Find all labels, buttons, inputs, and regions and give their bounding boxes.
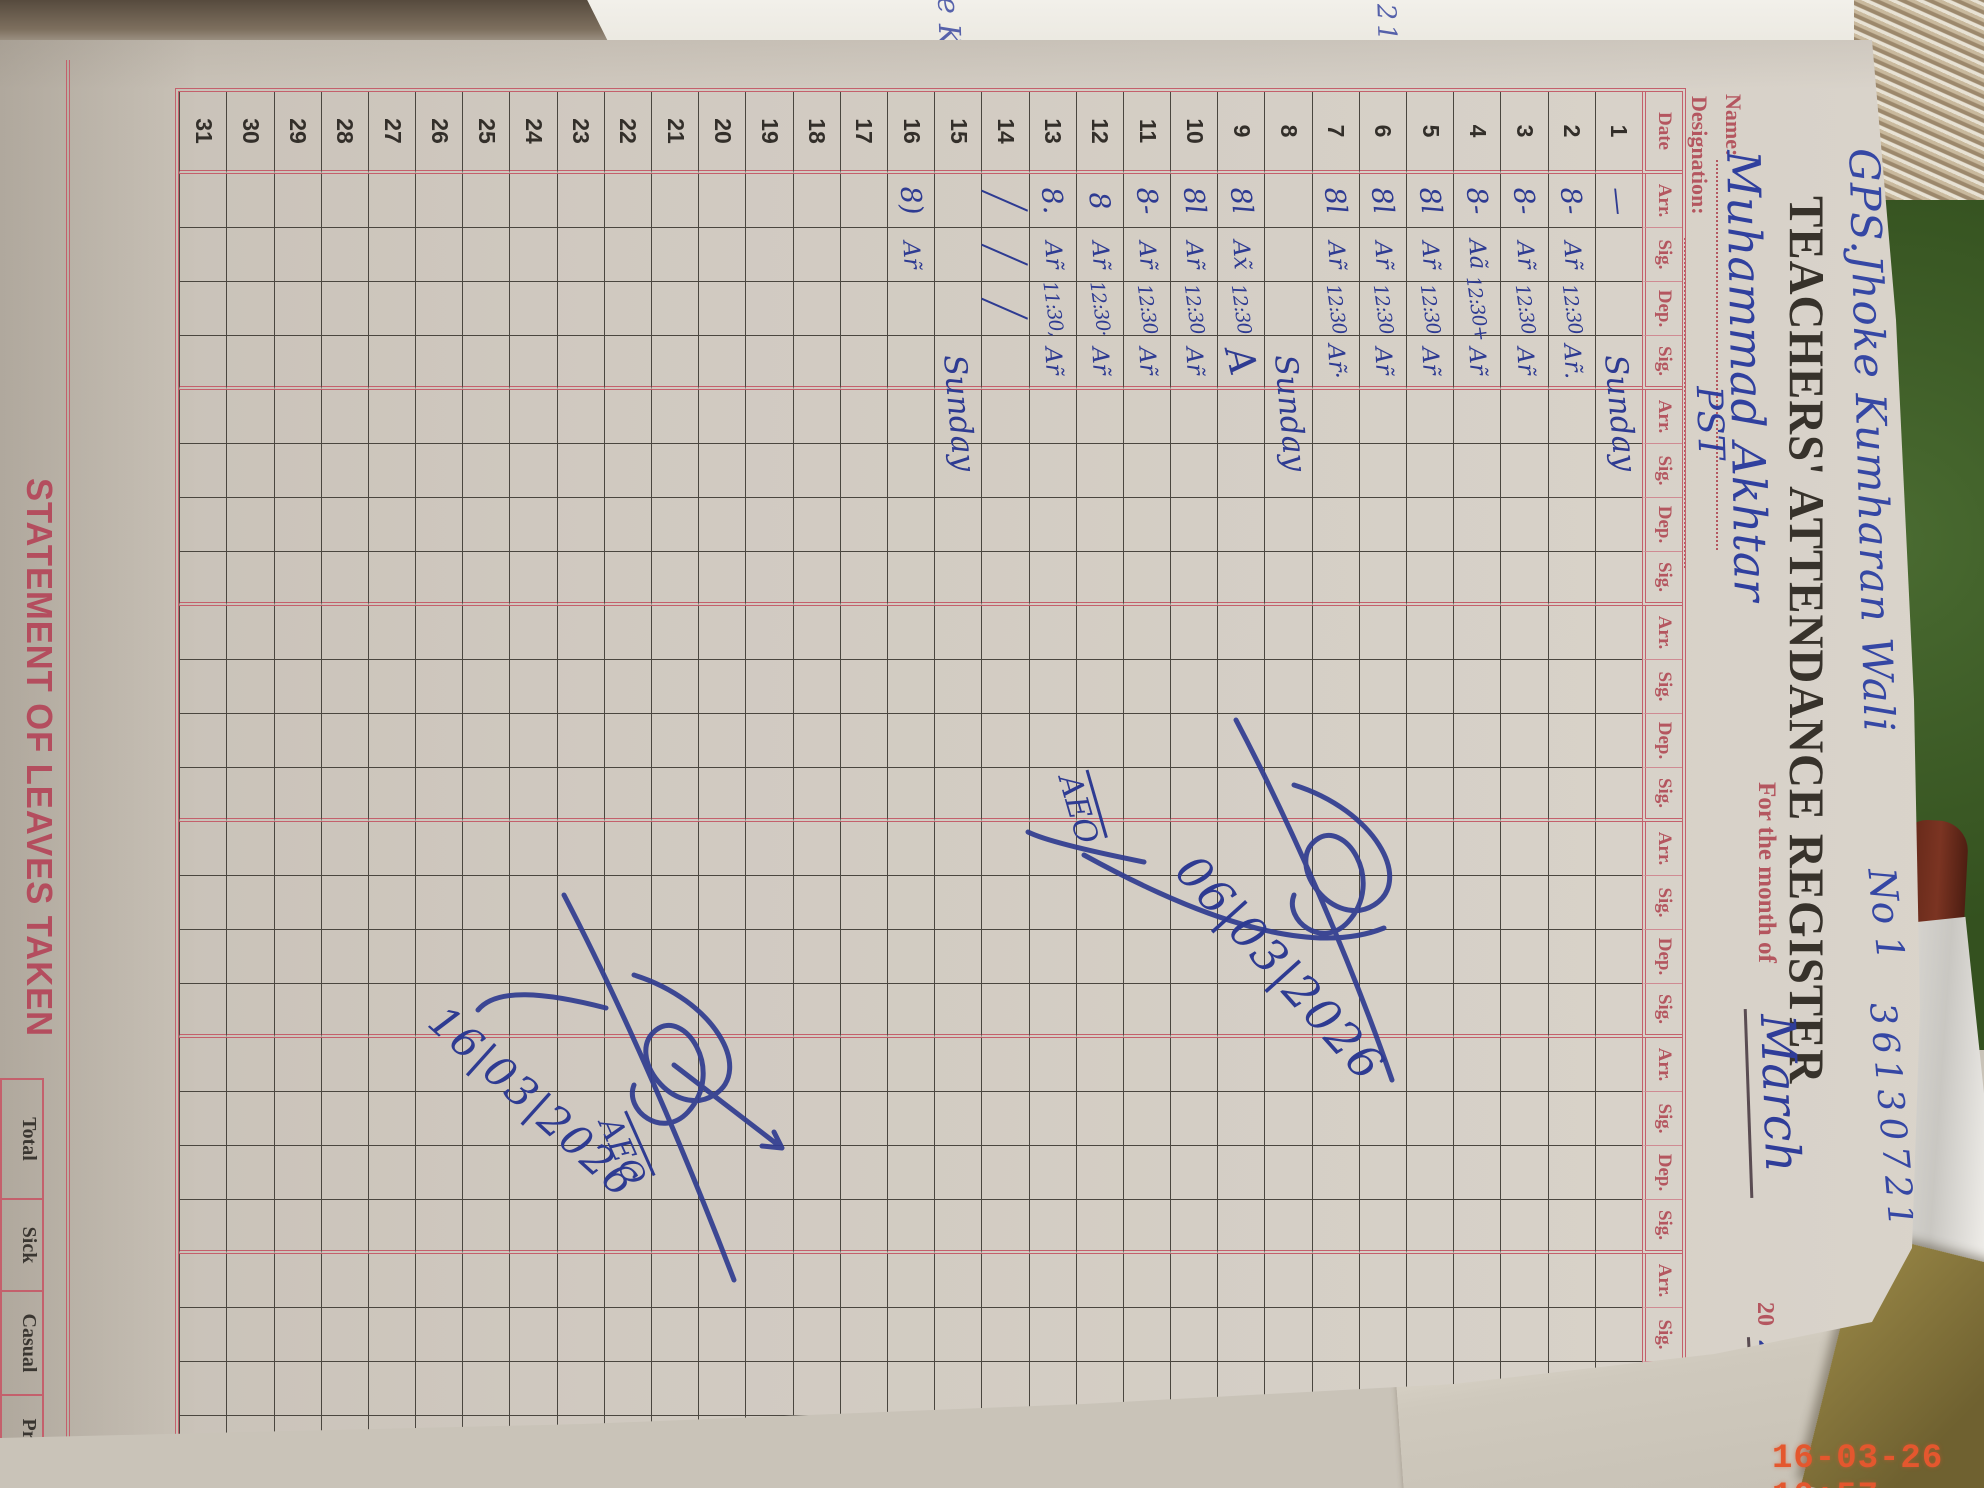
header-dep: Dep. [1642,1362,1682,1416]
empty-cell [1217,552,1264,606]
empty-cell [462,714,509,768]
empty-cell [1312,1308,1359,1362]
empty-cell [226,282,273,336]
empty-cell [226,822,273,876]
empty-cell [745,1416,792,1470]
empty-cell [1548,606,1595,660]
empty-cell [981,822,1028,876]
empty-cell [840,1254,887,1308]
empty-cell [1548,1308,1595,1362]
empty-cell [981,1200,1028,1254]
empty-cell [1359,1254,1406,1308]
empty-cell [1217,498,1264,552]
empty-cell [1406,1362,1453,1416]
entry-cell: Ar̃ [1170,228,1217,282]
statement-section-border [66,60,70,1468]
empty-cell [1359,606,1406,660]
empty-cell [934,1362,981,1416]
empty-cell [415,606,462,660]
empty-cell [368,444,415,498]
empty-cell [840,552,887,606]
date-cell: 2 [1548,92,1595,174]
empty-cell [179,1416,226,1470]
empty-cell [274,444,321,498]
entry-cell: 8l [1217,174,1264,228]
empty-cell [698,228,745,282]
empty-cell [1076,1416,1123,1470]
empty-cell [887,822,934,876]
name-label: Name: [1720,94,1746,156]
empty-cell [274,1092,321,1146]
empty-cell [1076,444,1123,498]
empty-cell [1500,876,1547,930]
empty-cell [1029,1200,1076,1254]
empty-cell [321,390,368,444]
empty-cell [226,1416,273,1470]
empty-cell [793,498,840,552]
empty-cell [1265,1416,1312,1470]
empty-cell [1595,1146,1642,1200]
empty-cell [1453,390,1500,444]
empty-cell [1265,1200,1312,1254]
empty-cell [1500,498,1547,552]
empty-cell [179,1200,226,1254]
empty-cell [1359,552,1406,606]
empty-cell [510,174,557,228]
empty-cell [745,390,792,444]
empty-cell [557,282,604,336]
statement-header-cells: TotalSickCasualPrv. [0,1078,44,1478]
empty-cell [321,768,368,822]
empty-cell [1453,1416,1500,1470]
empty-cell [415,822,462,876]
header-sig: Sig. [1642,660,1682,714]
empty-cell [226,1146,273,1200]
designation-label: Designation: [1686,96,1712,215]
empty-cell [934,1416,981,1470]
entry-cell: A [1217,336,1264,390]
empty-cell [981,1038,1028,1092]
empty-cell [887,876,934,930]
empty-cell [981,876,1028,930]
empty-cell [840,606,887,660]
entry-cell: Ar̃ [1500,228,1547,282]
header-dep: Dep. [1642,1146,1682,1200]
header-arr: Arr. [1642,174,1682,228]
empty-cell [226,930,273,984]
empty-cell [274,1254,321,1308]
empty-cell [1170,444,1217,498]
empty-cell [1217,606,1264,660]
empty-cell [226,1200,273,1254]
empty-cell [745,606,792,660]
date-cell: 17 [840,92,887,174]
empty-cell [1406,1254,1453,1308]
empty-cell [1217,444,1264,498]
empty-cell [462,282,509,336]
empty-cell [274,660,321,714]
empty-cell [321,876,368,930]
empty-cell [793,552,840,606]
empty-cell [462,660,509,714]
empty-cell [840,714,887,768]
empty-cell [462,174,509,228]
empty-cell [321,1200,368,1254]
empty-cell [179,876,226,930]
empty-cell [934,1038,981,1092]
empty-cell [1595,768,1642,822]
empty-cell [1453,876,1500,930]
empty-cell [651,714,698,768]
empty-cell [1500,1038,1547,1092]
empty-cell [274,1416,321,1470]
empty-cell [793,390,840,444]
header-arr: Arr. [1642,1254,1682,1308]
empty-cell [1548,1146,1595,1200]
empty-cell [1453,1092,1500,1146]
empty-cell [698,336,745,390]
empty-cell [1500,444,1547,498]
empty-cell [415,1416,462,1470]
empty-cell [604,228,651,282]
empty-cell [934,768,981,822]
empty-cell [274,1038,321,1092]
empty-cell [1312,606,1359,660]
empty-cell [840,660,887,714]
entry-cell: 8 [1076,174,1123,228]
empty-cell [698,498,745,552]
empty-cell [745,660,792,714]
empty-cell [321,606,368,660]
empty-cell [651,336,698,390]
empty-cell [274,1200,321,1254]
empty-cell [1595,228,1642,282]
empty-cell [604,174,651,228]
empty-cell [1312,1416,1359,1470]
empty-cell [1217,1200,1264,1254]
empty-cell [1453,822,1500,876]
empty-cell [1453,1362,1500,1416]
empty-cell [698,282,745,336]
empty-cell [934,714,981,768]
teacher-name-handwriting: Muhammad Akhtar [1716,150,1778,602]
empty-cell [1170,1362,1217,1416]
empty-cell [1406,606,1453,660]
empty-cell [651,444,698,498]
empty-cell [887,930,934,984]
empty-cell [1076,552,1123,606]
date-cell: 3 [1500,92,1547,174]
empty-cell [887,1416,934,1470]
empty-cell [179,1146,226,1200]
entry-cell: 12:30 [1170,282,1217,336]
empty-cell [1453,984,1500,1038]
empty-cell [981,930,1028,984]
empty-cell [274,984,321,1038]
empty-cell [368,1416,415,1470]
empty-cell [745,768,792,822]
date-cell: 30 [226,92,273,174]
date-cell: 5 [1406,92,1453,174]
empty-cell [510,282,557,336]
entry-cell: 8) [887,174,934,228]
empty-cell [840,1146,887,1200]
empty-cell [1548,714,1595,768]
empty-cell [1595,1362,1642,1416]
empty-cell [226,174,273,228]
empty-cell [1500,390,1547,444]
date-cell: 31 [179,92,226,174]
empty-cell [510,660,557,714]
empty-cell [1029,1416,1076,1470]
empty-cell [698,714,745,768]
empty-cell [887,1038,934,1092]
date-cell: 23 [557,92,604,174]
month-handwriting: March [1744,1007,1812,1198]
entry-cell: Ar̃ [1029,336,1076,390]
entry-cell: Ar̃ [1500,336,1547,390]
empty-cell [887,984,934,1038]
empty-cell [887,768,934,822]
empty-cell [840,930,887,984]
empty-cell [1076,606,1123,660]
empty-cell [274,822,321,876]
empty-cell [651,768,698,822]
empty-cell [274,768,321,822]
empty-cell [887,498,934,552]
empty-cell [1453,606,1500,660]
empty-cell [1123,1254,1170,1308]
empty-cell [981,768,1028,822]
empty-cell [368,336,415,390]
empty-cell [274,498,321,552]
entry-cell: 8l [1170,174,1217,228]
empty-cell [368,390,415,444]
date-cell: 4 [1453,92,1500,174]
empty-cell [1076,1362,1123,1416]
empty-cell [604,552,651,606]
empty-cell [179,660,226,714]
empty-cell [462,1416,509,1470]
empty-cell [274,174,321,228]
empty-cell [179,930,226,984]
empty-cell [1406,1200,1453,1254]
school-name-handwriting: GPS.Jhoke Kumharan Wali [1839,147,1903,733]
empty-cell [226,498,273,552]
empty-cell [321,336,368,390]
header-arr: Arr. [1642,606,1682,660]
empty-cell [557,174,604,228]
empty-cell [368,714,415,768]
empty-cell [934,606,981,660]
empty-cell [1406,444,1453,498]
register-page: GPS.Jhoke Kumharan Wali No 1 36130721 TE… [0,0,1984,1488]
empty-cell [981,444,1028,498]
empty-cell [510,228,557,282]
camera-timestamp: 16-03-26 10:57 [1772,1440,1984,1488]
empty-cell [1595,1200,1642,1254]
empty-cell [840,498,887,552]
header-arr: Arr. [1642,822,1682,876]
empty-cell [510,390,557,444]
empty-cell [321,552,368,606]
empty-cell [887,1254,934,1308]
empty-cell [887,1308,934,1362]
empty-cell [1312,1362,1359,1416]
empty-cell [651,174,698,228]
empty-cell [887,606,934,660]
empty-cell [1406,1308,1453,1362]
date-cell: 16 [887,92,934,174]
entry-cell: Ar̃ [887,228,934,282]
empty-cell [887,282,934,336]
empty-cell [793,174,840,228]
empty-cell [415,768,462,822]
empty-cell [179,228,226,282]
entry-cell: Ar̃ [1359,228,1406,282]
empty-cell [651,390,698,444]
empty-cell [887,1200,934,1254]
empty-cell [1312,444,1359,498]
empty-cell [179,552,226,606]
empty-cell [1123,552,1170,606]
date-cell: 14 [981,92,1028,174]
entry-cell: Ar̃ [1548,228,1595,282]
empty-cell [1029,444,1076,498]
empty-cell [793,228,840,282]
empty-cell [415,444,462,498]
empty-cell [226,390,273,444]
empty-cell [1548,1362,1595,1416]
header-arr: Arr. [1642,1038,1682,1092]
date-cell: 22 [604,92,651,174]
empty-cell [651,282,698,336]
empty-cell [368,552,415,606]
empty-cell [745,174,792,228]
empty-cell [368,606,415,660]
empty-cell [1359,390,1406,444]
date-cell: 6 [1359,92,1406,174]
empty-cell [1453,1200,1500,1254]
empty-cell [179,822,226,876]
empty-cell [981,552,1028,606]
empty-cell [415,390,462,444]
empty-cell [1217,1254,1264,1308]
empty-cell [1170,1308,1217,1362]
empty-cell [981,984,1028,1038]
empty-cell [1548,1038,1595,1092]
empty-cell [698,552,745,606]
empty-cell [1595,822,1642,876]
empty-cell [1453,714,1500,768]
statement-col-sick: Sick [0,1198,44,1290]
empty-cell [1217,1416,1264,1470]
header-sig: Sig. [1642,984,1682,1038]
empty-cell [321,984,368,1038]
date-cell: 8 [1265,92,1312,174]
empty-cell [462,606,509,660]
empty-cell [604,1416,651,1470]
empty-cell [1453,1146,1500,1200]
entry-cell: Ar̃ [1312,228,1359,282]
empty-cell [274,1146,321,1200]
empty-cell [1265,1254,1312,1308]
empty-cell [840,876,887,930]
header-sig: Sig. [1642,876,1682,930]
date-cell: 19 [745,92,792,174]
empty-cell [1500,1092,1547,1146]
empty-cell [1453,444,1500,498]
empty-cell [698,444,745,498]
empty-cell [1406,552,1453,606]
empty-cell [226,444,273,498]
empty-cell [462,390,509,444]
empty-cell [510,444,557,498]
empty-cell [981,714,1028,768]
entry-cell: 8l [1312,174,1359,228]
year-prefix: 20 [1751,1302,1778,1326]
header-sig: Sig. [1642,1200,1682,1254]
entry-cell: Ar̃ [1076,228,1123,282]
empty-cell [1548,660,1595,714]
empty-cell [226,714,273,768]
empty-cell [226,228,273,282]
empty-cell [934,984,981,1038]
entry-cell: 12:30 [1406,282,1453,336]
empty-cell [793,282,840,336]
empty-cell [415,228,462,282]
empty-cell [179,768,226,822]
empty-cell [462,768,509,822]
empty-cell [981,1416,1028,1470]
empty-cell [557,714,604,768]
empty-cell [179,606,226,660]
empty-cell [226,984,273,1038]
empty-cell [226,660,273,714]
emis-code-handwriting: 36130721 [1861,1001,1922,1235]
empty-cell [557,552,604,606]
empty-cell [510,714,557,768]
empty-cell [1265,1308,1312,1362]
header-dep: Dep. [1642,282,1682,336]
empty-cell [1500,984,1547,1038]
empty-cell [274,1308,321,1362]
empty-cell [793,1416,840,1470]
empty-cell [557,336,604,390]
entry-cell: / [981,282,1028,336]
entry-cell: Ar̃ [1359,336,1406,390]
header-dep: Dep. [1642,930,1682,984]
empty-cell [274,876,321,930]
empty-cell [226,876,273,930]
date-cell: 15 [934,92,981,174]
empty-cell [1595,984,1642,1038]
empty-cell [1076,390,1123,444]
statement-section-title: STATEMENT OF LEAVES TAKEN [18,478,60,1037]
empty-cell [1548,1416,1595,1470]
empty-cell [934,1200,981,1254]
empty-cell [1170,1416,1217,1470]
empty-cell [1312,1254,1359,1308]
empty-cell [1595,1416,1642,1470]
empty-cell [321,822,368,876]
empty-cell [321,1416,368,1470]
header-sig: Sig. [1642,768,1682,822]
empty-cell [840,1038,887,1092]
empty-cell [604,282,651,336]
entry-cell: / [981,228,1028,282]
empty-cell [1029,606,1076,660]
